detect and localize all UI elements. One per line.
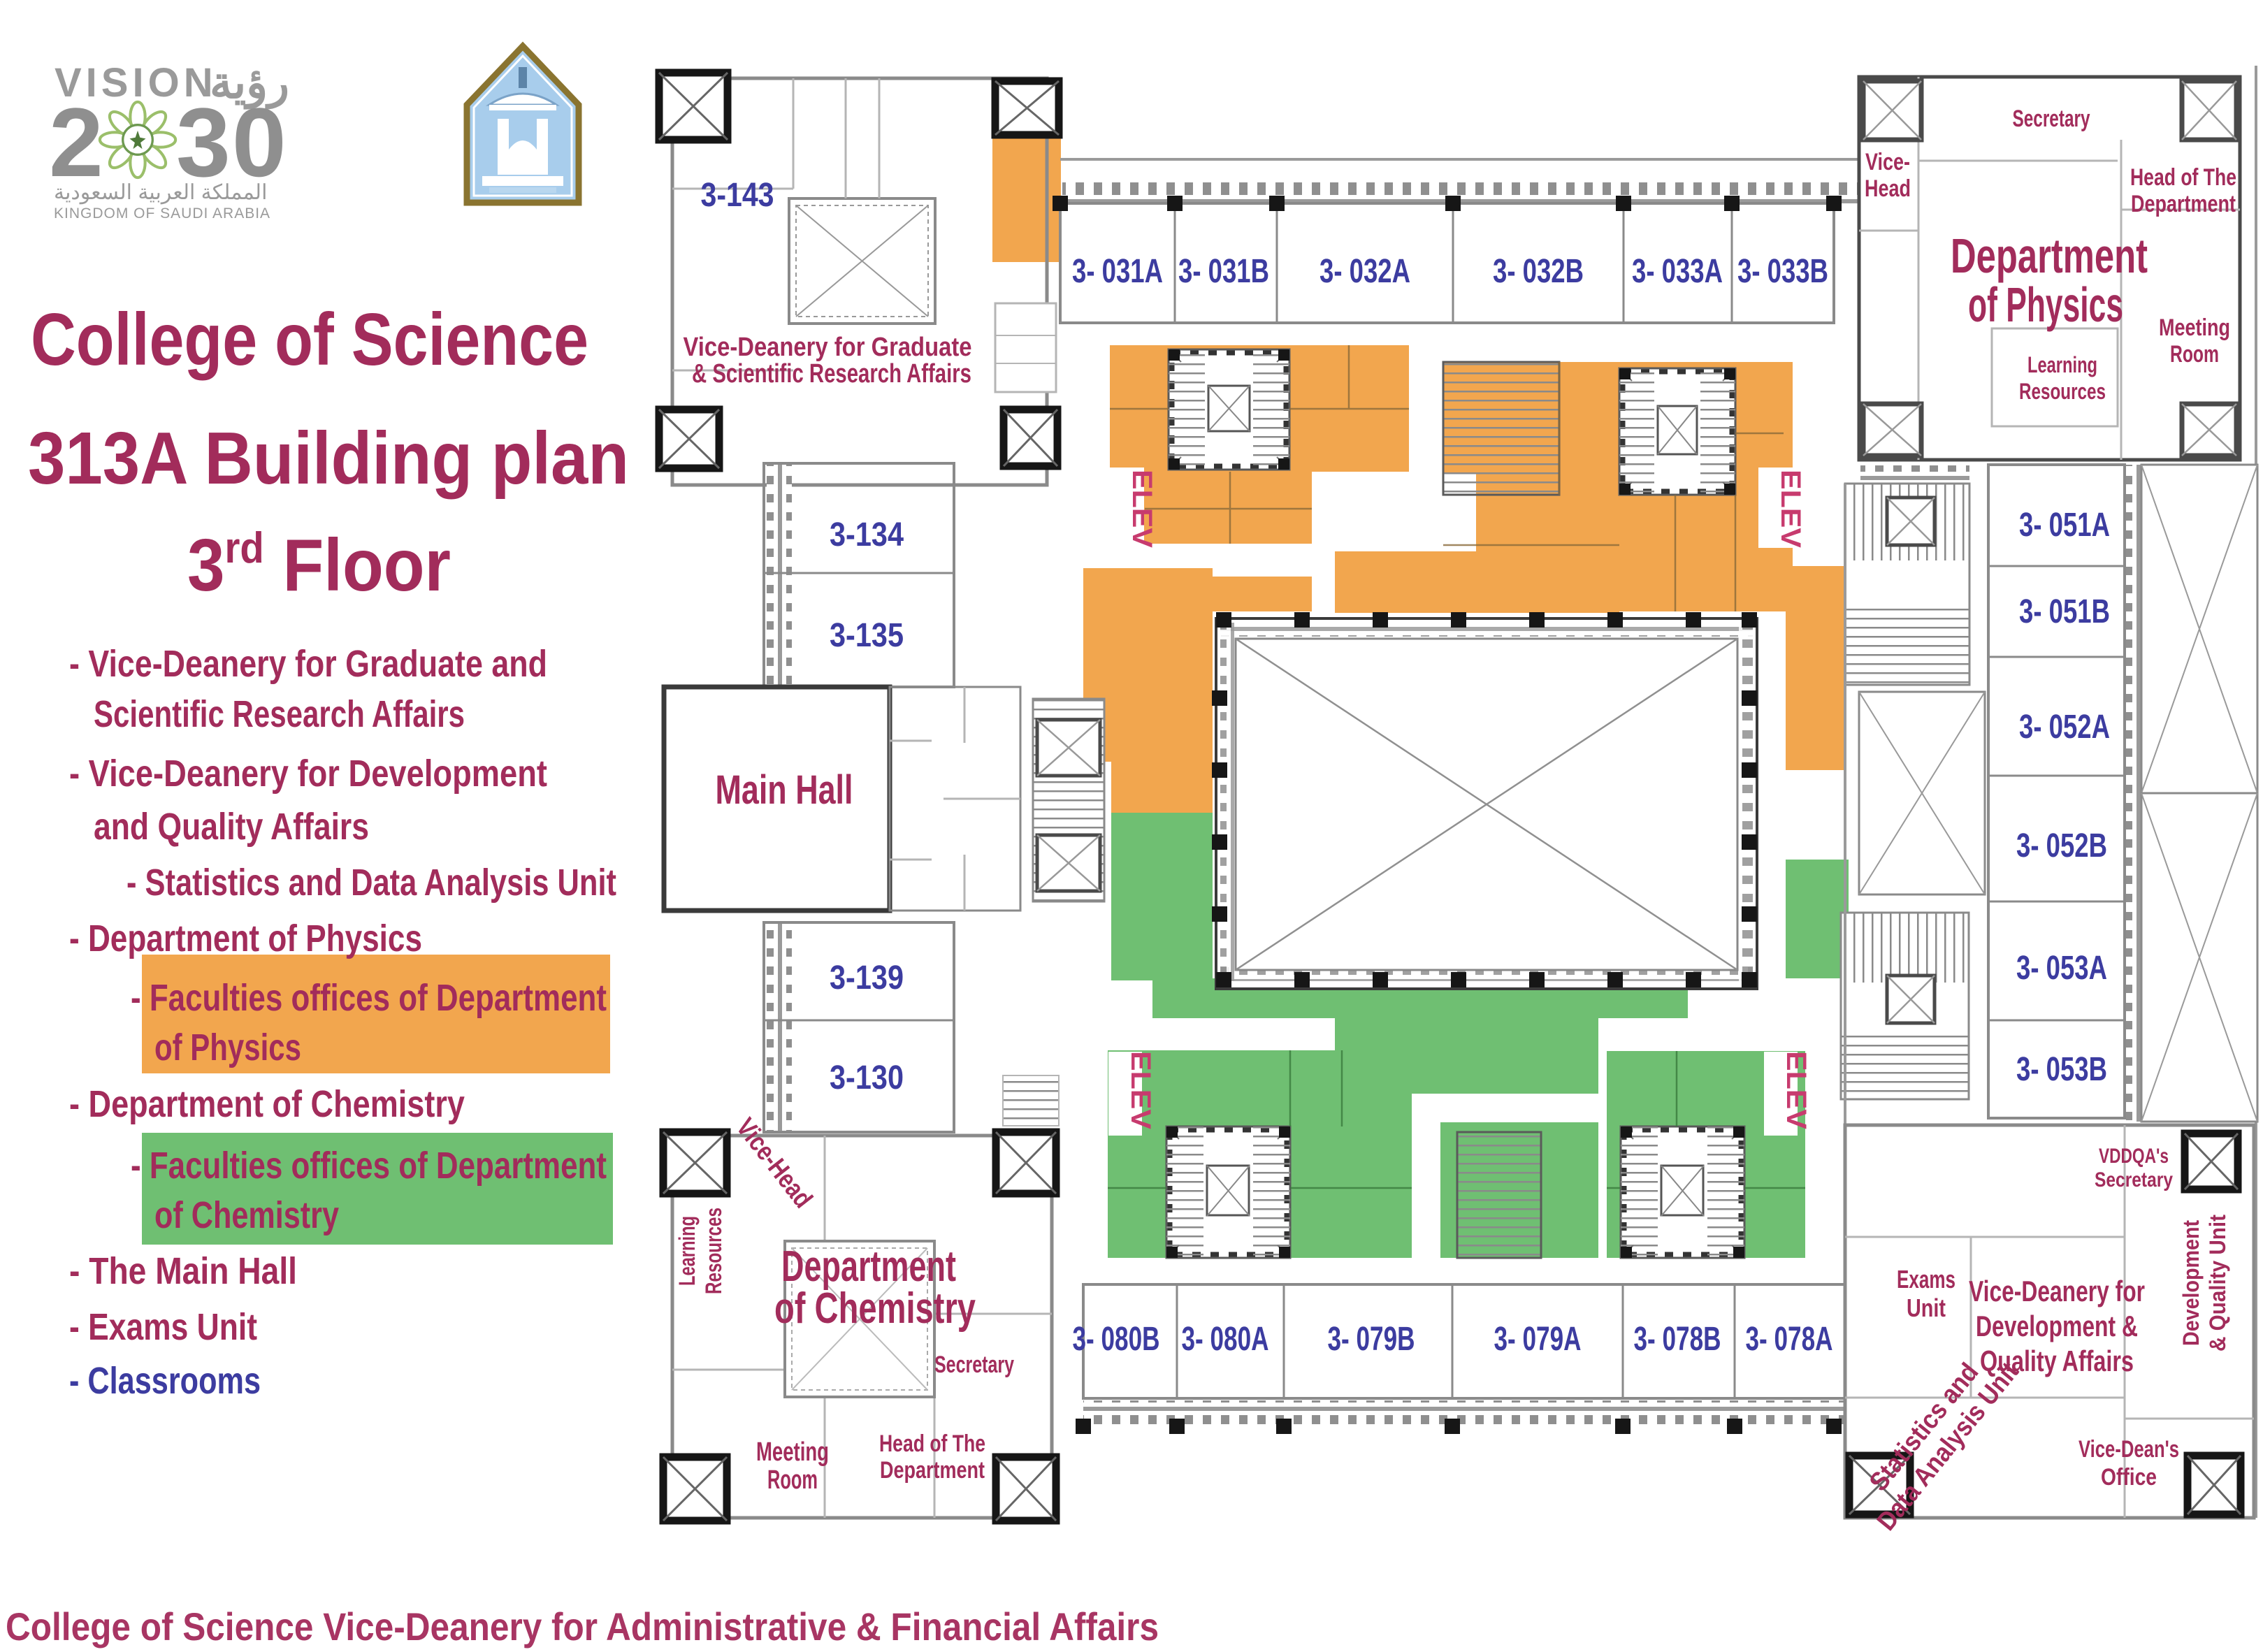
svg-text:- Faculties offices of Departm: - Faculties offices of Department: [131, 1145, 607, 1187]
svg-text:Head: Head: [1865, 175, 1911, 202]
svg-text:3- 051A: 3- 051A: [2019, 507, 2110, 544]
svg-text:- Department of Chemistry: - Department of Chemistry: [69, 1083, 465, 1125]
svg-text:& Quality Unit: & Quality Unit: [2205, 1215, 2230, 1352]
svg-text:3- 079B: 3- 079B: [1328, 1321, 1415, 1358]
svg-text:3- 078A: 3- 078A: [1746, 1321, 1833, 1358]
svg-text:Meeting: Meeting: [756, 1437, 829, 1467]
svg-text:Secretary: Secretary: [2095, 1168, 2173, 1191]
svg-text:of Chemistry: of Chemistry: [154, 1194, 339, 1236]
svg-text:- Classrooms: - Classrooms: [69, 1360, 261, 1402]
svg-text:KINGDOM OF SAUDI ARABIA: KINGDOM OF SAUDI ARABIA: [54, 205, 270, 222]
svg-text:Department: Department: [880, 1457, 985, 1484]
svg-text:Secretary: Secretary: [934, 1352, 1014, 1378]
svg-text:3- 079A: 3- 079A: [1494, 1321, 1582, 1358]
svg-text:3- 052B: 3- 052B: [2016, 827, 2107, 864]
svg-text:المملكة العربية السعودية: المملكة العربية السعودية: [54, 181, 267, 205]
svg-text:Scientific Research Affairs: Scientific Research Affairs: [94, 693, 465, 735]
svg-text:Head of The: Head of The: [2130, 164, 2236, 191]
svg-text:- Vice-Deanery for Graduate an: - Vice-Deanery for Graduate and: [69, 643, 547, 685]
svg-text:3- 031B: 3- 031B: [1178, 253, 1269, 290]
svg-text:Vice-: Vice-: [1865, 149, 1910, 175]
svg-text:ELEV: ELEV: [1125, 1051, 1156, 1129]
svg-text:3-134: 3-134: [830, 516, 904, 553]
svg-text:ELEV: ELEV: [1781, 1051, 1812, 1129]
svg-text:Vice-Dean's: Vice-Dean's: [2078, 1436, 2179, 1463]
svg-text:Learning: Learning: [674, 1216, 700, 1286]
svg-text:Resources: Resources: [2019, 379, 2106, 404]
svg-text:Vice-Deanery for: Vice-Deanery for: [1969, 1275, 2145, 1307]
svg-text:& Scientific Research Affairs: & Scientific Research Affairs: [692, 359, 971, 389]
svg-text:Learning: Learning: [2027, 352, 2097, 377]
svg-text:Head of The: Head of The: [879, 1430, 985, 1457]
svg-text:Room: Room: [767, 1465, 818, 1495]
svg-text:Office: Office: [2101, 1464, 2157, 1491]
svg-text:3- 051B: 3- 051B: [2019, 593, 2110, 630]
svg-text:Unit: Unit: [1907, 1294, 1946, 1322]
svg-text:Development: Development: [2178, 1220, 2204, 1346]
svg-text:3-143: 3-143: [701, 177, 774, 214]
svg-text:- Vice-Deanery for Development: - Vice-Deanery for Development: [69, 753, 547, 795]
svg-text:- Exams Unit: - Exams Unit: [69, 1306, 257, 1348]
svg-text:of Chemistry: of Chemistry: [774, 1284, 976, 1333]
svg-text:VDDQA's: VDDQA's: [2099, 1145, 2169, 1168]
svg-text:ELEV: ELEV: [1127, 470, 1157, 548]
svg-text:3- 053B: 3- 053B: [2016, 1051, 2107, 1088]
svg-text:Department: Department: [781, 1242, 956, 1291]
svg-text:ELEV: ELEV: [1775, 470, 1806, 548]
svg-text:and Quality Affairs: and Quality Affairs: [94, 806, 369, 848]
svg-text:3- 080B: 3- 080B: [1073, 1321, 1160, 1358]
svg-text:Vice-Deanery for Graduate: Vice-Deanery for Graduate: [684, 333, 972, 362]
svg-text:313A Building plan: 313A Building plan: [28, 417, 629, 500]
svg-text:of Physics: of Physics: [1968, 277, 2123, 332]
svg-text:Exams: Exams: [1897, 1265, 1955, 1294]
svg-text:College of Science: College of Science: [31, 298, 588, 381]
svg-text:Secretary: Secretary: [2013, 106, 2090, 132]
svg-text:3-139: 3-139: [830, 959, 904, 997]
svg-text:College of Science Vice-Deaner: College of Science Vice-Deanery for Admi…: [6, 1604, 1159, 1649]
svg-text:Department: Department: [2131, 191, 2236, 217]
svg-text:3- 080A: 3- 080A: [1182, 1321, 1269, 1358]
svg-text:3-135: 3-135: [830, 617, 904, 654]
svg-text:- Statistics and Data Analysis: - Statistics and Data Analysis Unit: [126, 862, 616, 904]
svg-text:of Physics: of Physics: [154, 1027, 301, 1068]
svg-text:- Department of Physics: - Department of Physics: [69, 918, 422, 959]
svg-text:3- 052A: 3- 052A: [2019, 709, 2110, 746]
svg-text:Development &: Development &: [1976, 1310, 2138, 1342]
svg-text:3- 033B: 3- 033B: [1737, 253, 1828, 290]
svg-text:Resources: Resources: [701, 1208, 726, 1294]
svg-text:3- 032A: 3- 032A: [1320, 253, 1410, 290]
svg-text:- The Main Hall: - The Main Hall: [69, 1250, 297, 1292]
svg-text:3-130: 3-130: [830, 1059, 904, 1096]
svg-text:3- 033A: 3- 033A: [1632, 253, 1723, 290]
svg-text:3- 031A: 3- 031A: [1072, 253, 1163, 290]
svg-text:Meeting: Meeting: [2159, 314, 2230, 341]
svg-text:- Faculties offices of Departm: - Faculties offices of Department: [131, 977, 607, 1019]
svg-text:3- 032B: 3- 032B: [1493, 253, 1584, 290]
svg-text:3- 053A: 3- 053A: [2016, 950, 2107, 987]
svg-text:Main Hall: Main Hall: [716, 767, 853, 813]
svg-text:3- 078B: 3- 078B: [1634, 1321, 1721, 1358]
svg-text:Room: Room: [2170, 341, 2219, 368]
svg-text:Department: Department: [1951, 229, 2148, 283]
